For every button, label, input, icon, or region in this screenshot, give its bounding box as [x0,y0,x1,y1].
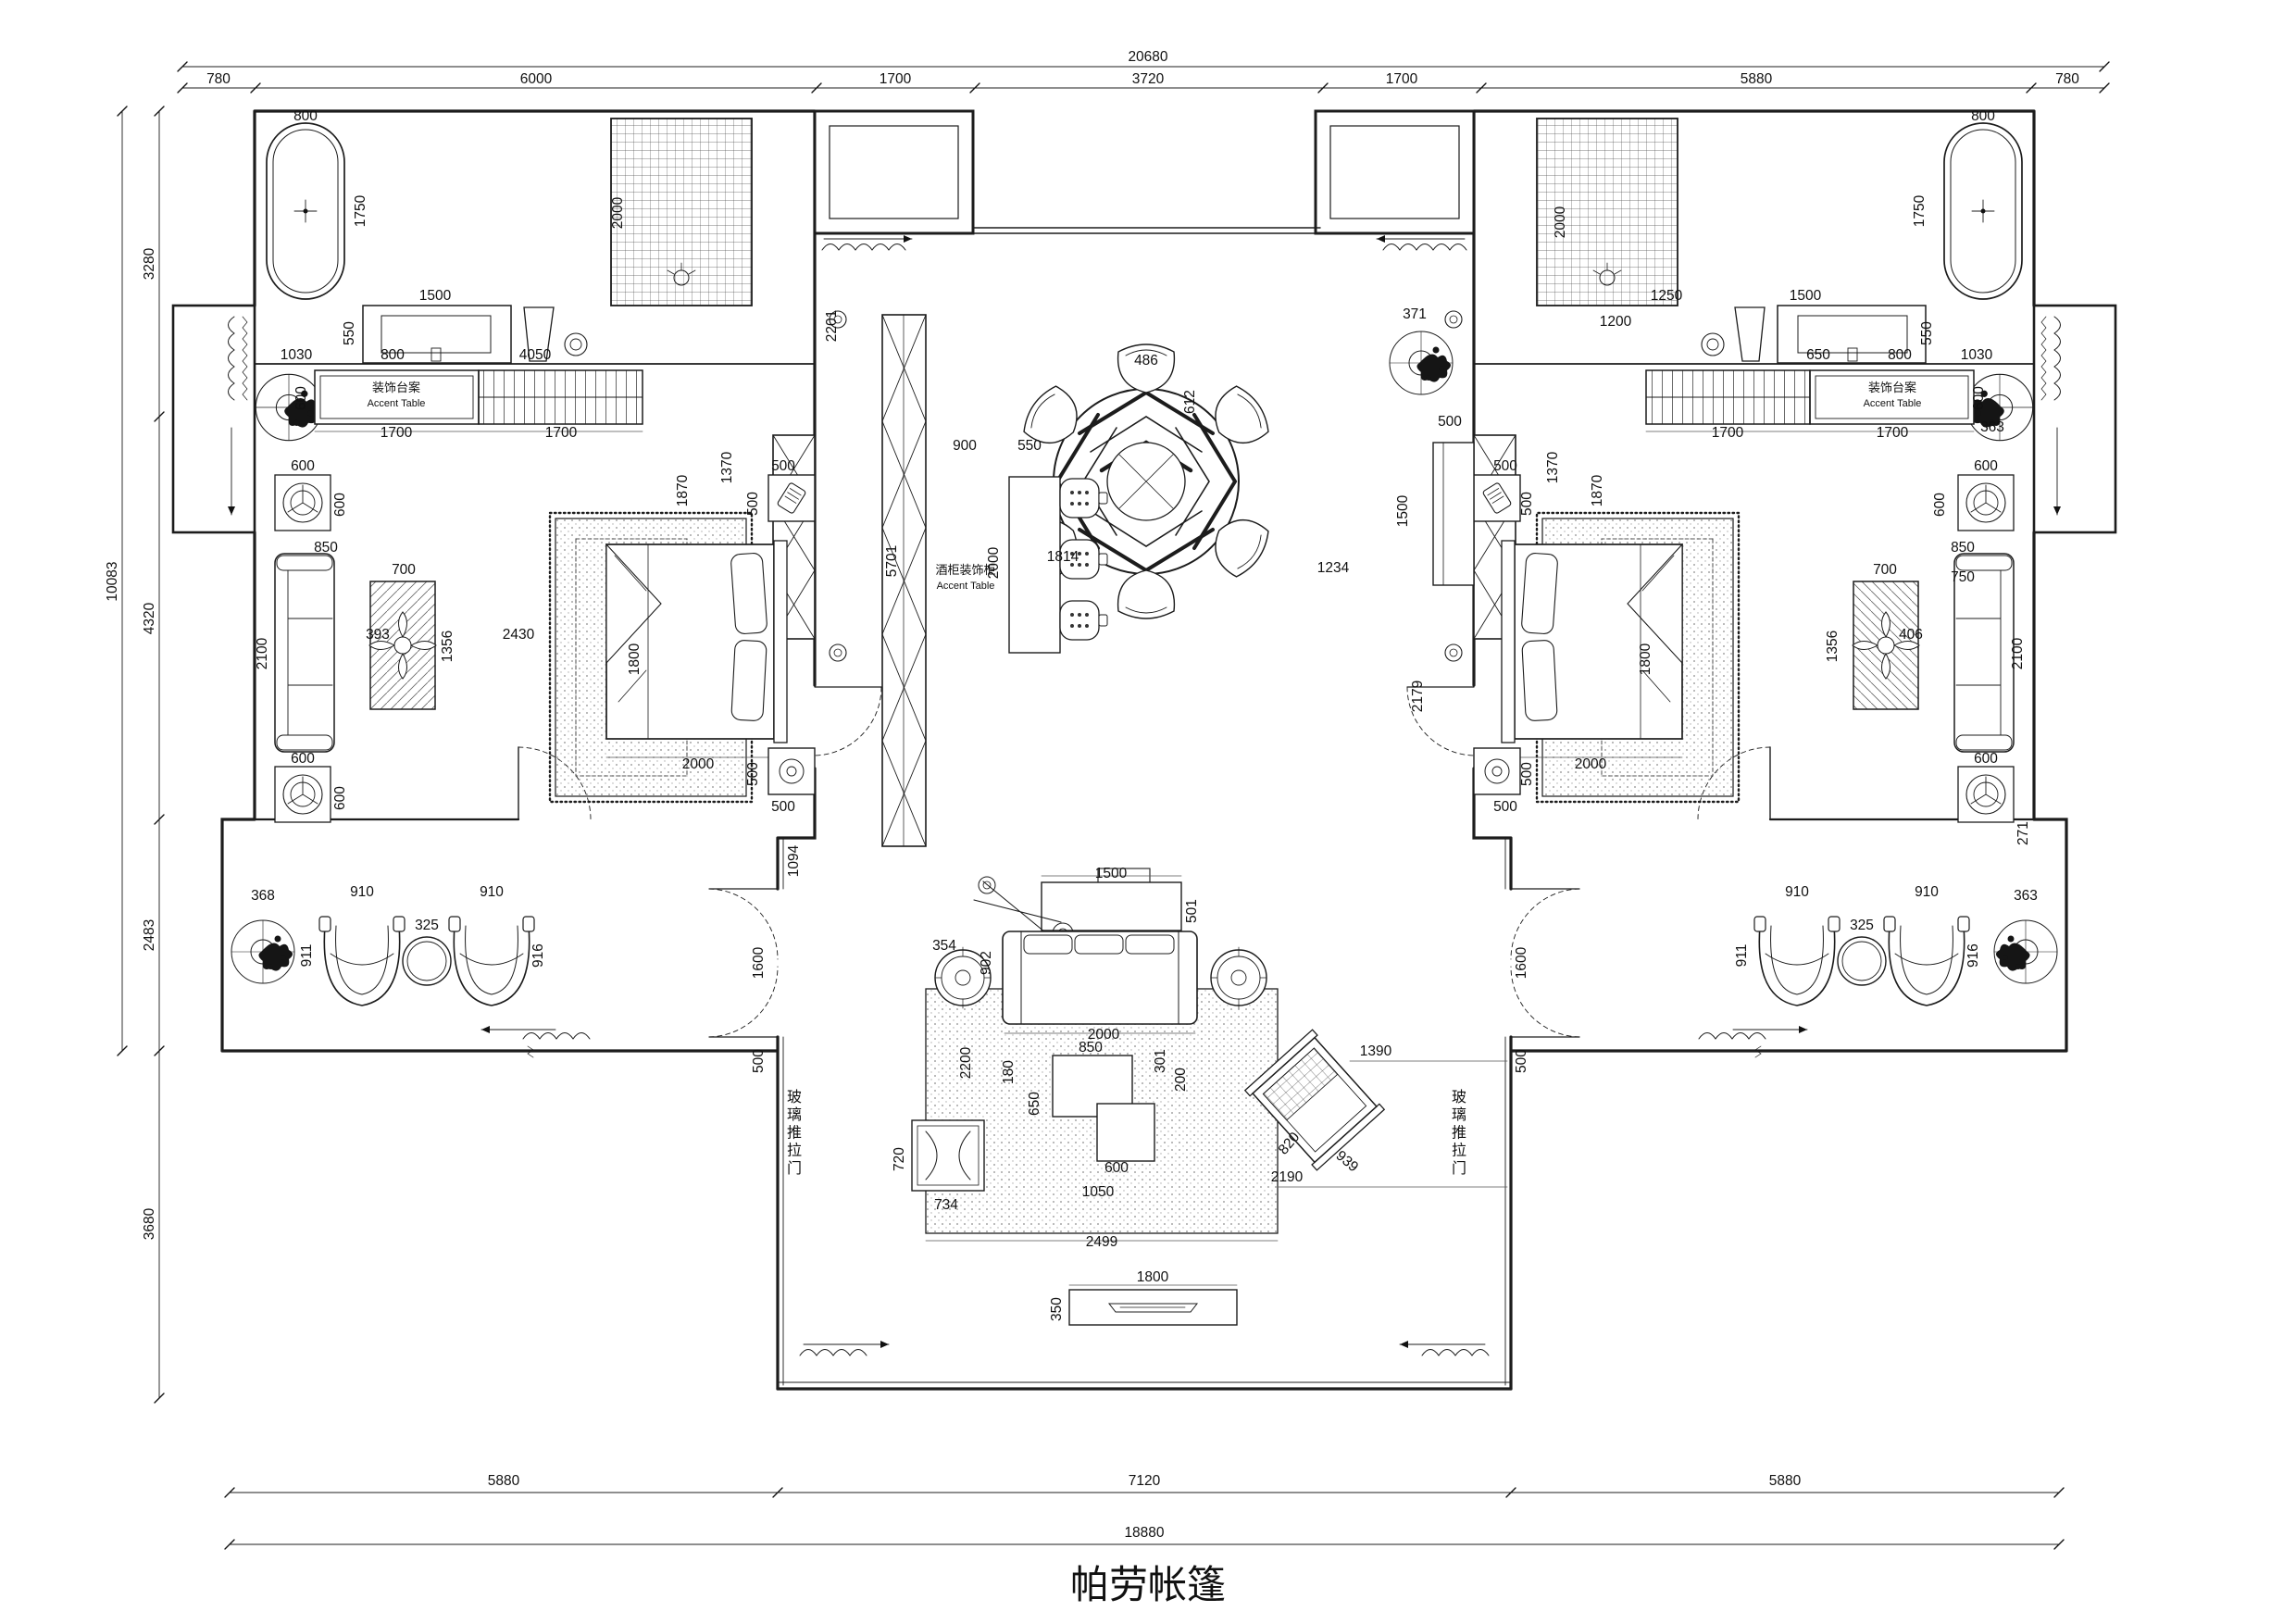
dim-label: 550 [1919,321,1935,345]
dim-label: 500 [771,458,795,474]
dim-label: 20680 [1128,49,1167,65]
dim-label: 1234 [1317,560,1350,576]
living-room [778,868,1511,1389]
dim-label: 486 [1134,353,1158,369]
plan-geometry [118,62,2115,1549]
dim-label: 500 [1493,799,1517,815]
side-coffee-table [1097,1104,1154,1161]
dim-label: 910 [1915,884,1939,900]
dim-label: 1750 [353,194,368,227]
dim-label: 550 [1017,438,1042,454]
dim-label: 600 [1104,1160,1129,1176]
dim-label: 734 [934,1197,958,1213]
dim-label: 1094 [786,844,802,877]
dim-label: 271 [2015,821,2031,845]
dim-label: 2000 [1575,756,1607,772]
dim-label: 1700 [1877,425,1909,441]
dim-label: 2000 [610,196,626,229]
dim-label: 600 [332,786,348,810]
dim-label: 1030 [1961,347,1993,363]
dim-label: 5880 [1741,71,1773,87]
dim-label: 200 [1173,1068,1189,1092]
dim-label: 5701 [884,545,900,577]
dim-label: 3280 [142,247,157,280]
dim-label: 1370 [719,451,735,483]
dim-label: 363 [1980,419,2004,435]
dim-label: 350 [1049,1297,1065,1321]
dim-label: 363 [2014,888,2038,904]
dim-label: 1800 [1137,1269,1169,1285]
dim-label: 325 [1850,918,1874,933]
dim-label: 850 [1079,1040,1103,1056]
dim-label: 501 [1184,899,1200,923]
dim-label: 700 [392,562,416,578]
dim-label: 780 [206,71,231,87]
dim-label: 1390 [1360,1043,1392,1059]
dim-label: 500 [1519,492,1535,516]
dim-label: 2000 [1553,206,1568,238]
dim-label: 1030 [281,347,313,363]
dim-label: 1700 [880,71,912,87]
room-label: 玻璃推拉门 [787,1089,802,1177]
dim-label: 2430 [503,627,535,643]
dim-label: 500 [1519,762,1535,786]
dim-label: 500 [751,1049,767,1073]
dim-label: 1700 [1386,71,1418,87]
dim-label: 500 [1438,414,1462,430]
dim-label: 500 [1493,458,1517,474]
living-sofa [1003,931,1197,1024]
dim-label: 600 [1974,458,1998,474]
dim-label: 1870 [1590,474,1605,506]
dim-label: 2200 [958,1046,974,1079]
dim-label: 393 [366,627,390,643]
center-hall [830,228,1474,846]
dim-label: 500 [745,762,761,786]
dim-label: 3720 [1132,71,1165,87]
room-label: Accent Table [368,398,426,409]
dim-label: 2100 [2010,637,2026,669]
dim-label: 1800 [627,643,643,675]
dim-label: 2000 [986,546,1002,579]
dim-label: 325 [415,918,439,933]
dim-label: 7120 [1129,1473,1161,1489]
dim-label: 1356 [440,631,455,662]
dim-label: 600 [291,458,315,474]
dim-label: 406 [1899,627,1923,643]
dim-label: 911 [299,944,315,968]
dim-label: 1600 [1514,946,1529,979]
dim-label: 1356 [1825,631,1841,662]
dim-label: 1500 [1095,866,1128,881]
dim-label: 1370 [1545,451,1561,483]
dim-label: 910 [1785,884,1809,900]
dim-label: 5880 [1769,1473,1802,1489]
dim-label: 650 [1806,347,1830,363]
dim-label: 600 [1932,493,1948,517]
dim-label: 180 [1001,1060,1017,1084]
dim-label: 301 [1153,1049,1168,1073]
room-label: Accent Table [937,581,995,592]
dim-label: 354 [932,938,956,954]
dim-label: 550 [342,321,357,345]
dim-label: 1870 [675,474,691,506]
bar-counter [1009,477,1060,653]
dim-label: 600 [291,751,315,767]
dim-label: 850 [314,540,338,556]
dim-label: 750 [1951,569,1975,585]
dim-label: 800 [1971,108,1995,124]
dim-label: 1500 [419,288,452,304]
dim-label: 600 [293,386,309,410]
dim-label: 1700 [1712,425,1744,441]
dim-label: 10083 [105,561,120,601]
dim-label: 6000 [520,71,553,87]
dim-label: 3680 [142,1207,157,1240]
dim-label: 1500 [1790,288,1822,304]
dim-label: 600 [1971,386,1987,410]
dim-label: 500 [771,799,795,815]
dim-label: 1200 [1600,314,1632,330]
partition-console [1433,443,1474,585]
floor-plan-page: 帕劳帐篷 20680780600017003720170058807801008… [0,0,2296,1624]
plan-title: 帕劳帐篷 [1070,1563,1226,1606]
dim-label: 2000 [682,756,715,772]
dim-label: 1750 [1912,194,1928,227]
dim-label: 780 [2055,71,2079,87]
dim-label: 1600 [751,946,767,979]
dim-label: 1700 [545,425,578,441]
dim-label: 4050 [519,347,552,363]
dim-label: 900 [953,438,977,454]
dim-label: 1814 [1047,549,1079,565]
dim-label: 720 [892,1147,907,1171]
room-label: 装饰台案 [1868,381,1916,394]
dim-label: 2201 [824,310,840,342]
dim-label: 650 [1027,1092,1042,1116]
dim-label: 800 [293,108,318,124]
dim-label: 2100 [255,637,270,669]
dim-label: 600 [332,493,348,517]
dim-label: 1800 [1638,643,1653,675]
right-suite [1316,111,2115,1389]
dim-label: 18880 [1124,1525,1164,1541]
dim-label: 500 [1514,1049,1529,1073]
dim-label: 2499 [1086,1234,1117,1250]
room-label: 装饰台案 [372,381,420,394]
dim-label: 2179 [1410,681,1426,712]
dim-label: 850 [1951,540,1975,556]
dim-label: 916 [1965,943,1981,968]
dim-label: 371 [1403,306,1427,322]
dim-label: 910 [480,884,504,900]
dim-label: 600 [1974,751,1998,767]
dim-label: 2483 [142,919,157,951]
dim-label: 368 [251,888,275,904]
dim-label: 1700 [381,425,413,441]
dim-label: 910 [350,884,374,900]
dim-label: 800 [1888,347,1912,363]
room-label: Accent Table [1864,398,1922,409]
dim-label: 1500 [1395,494,1411,527]
bench [912,1120,984,1191]
dim-label: 5880 [488,1473,520,1489]
dim-label: 4320 [142,602,157,634]
dim-label: 902 [979,951,994,975]
dimension-ticks [118,62,2109,1549]
dim-label: 700 [1873,562,1897,578]
dim-label: 1050 [1082,1184,1115,1200]
dim-label: 911 [1734,944,1750,968]
dim-label: 500 [745,492,761,516]
dim-label: 2190 [1271,1169,1304,1185]
floor-plan-canvas: 帕劳帐篷 20680780600017003720170058807801008… [0,0,2296,1624]
left-suite [173,111,973,1389]
dim-label: 800 [381,347,405,363]
room-label: 玻璃推拉门 [1452,1089,1466,1177]
dim-label: 916 [530,943,546,968]
dim-label: 1250 [1651,288,1683,304]
dim-label: 612 [1182,390,1198,414]
